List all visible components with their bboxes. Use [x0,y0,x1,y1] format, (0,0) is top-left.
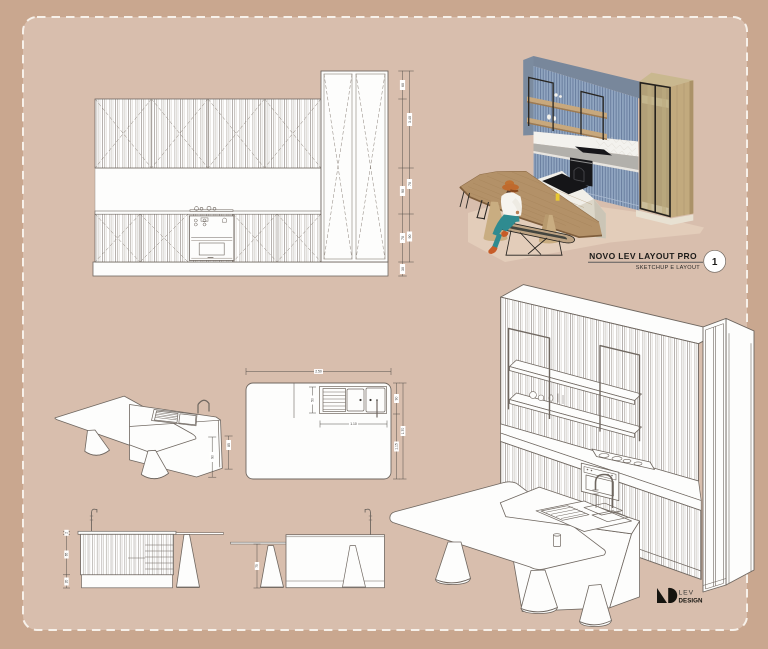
svg-text:85: 85 [227,443,231,447]
svg-text:2: 2 [65,532,69,534]
svg-text:50: 50 [311,398,315,402]
svg-text:90: 90 [395,397,399,401]
svg-text:1.10: 1.10 [350,422,357,426]
svg-text:75: 75 [255,564,259,568]
svg-text:20: 20 [65,580,69,584]
svg-text:90: 90 [401,189,405,193]
svg-text:SKETCHUP E LAYOUT: SKETCHUP E LAYOUT [636,265,701,271]
svg-text:70: 70 [401,236,405,240]
svg-text:2.50: 2.50 [315,370,322,374]
svg-text:DESIGN: DESIGN [679,597,704,604]
svg-text:90: 90 [210,455,214,459]
svg-text:65: 65 [65,553,69,557]
svg-text:1: 1 [712,257,718,268]
svg-text:NOVO LEV LAYOUT PRO: NOVO LEV LAYOUT PRO [589,251,697,261]
svg-text:70: 70 [408,182,412,186]
svg-text:60: 60 [401,83,405,87]
svg-text:90: 90 [408,235,412,239]
svg-text:LEV: LEV [679,589,695,596]
svg-text:30: 30 [401,267,405,271]
svg-text:1.15: 1.15 [395,443,399,450]
svg-text:3.40: 3.40 [408,116,412,123]
svg-text:1.70: 1.70 [401,428,405,435]
